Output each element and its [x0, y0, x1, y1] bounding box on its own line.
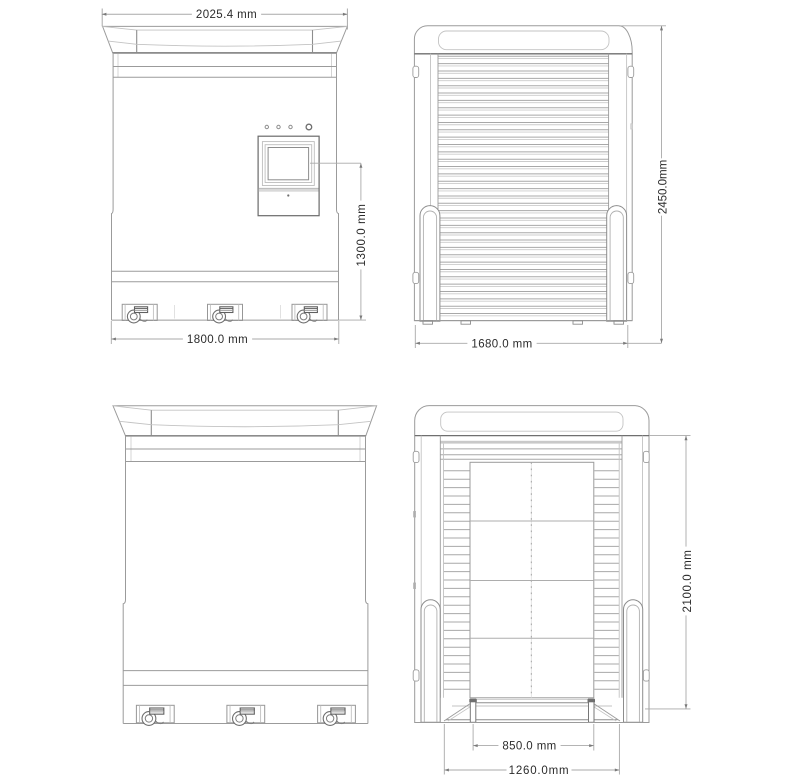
svg-text:2025.4 mm: 2025.4 mm [196, 9, 257, 21]
svg-text:2100.0 mm: 2100.0 mm [682, 550, 694, 613]
svg-text:1300.0 mm: 1300.0 mm [356, 204, 368, 267]
svg-text:850.0 mm: 850.0 mm [502, 741, 556, 753]
svg-text:1680.0 mm: 1680.0 mm [471, 338, 532, 350]
svg-text:1260.0mm: 1260.0mm [509, 765, 570, 777]
svg-text:2450.0mm: 2450.0mm [657, 160, 669, 214]
svg-text:1800.0 mm: 1800.0 mm [187, 334, 248, 346]
